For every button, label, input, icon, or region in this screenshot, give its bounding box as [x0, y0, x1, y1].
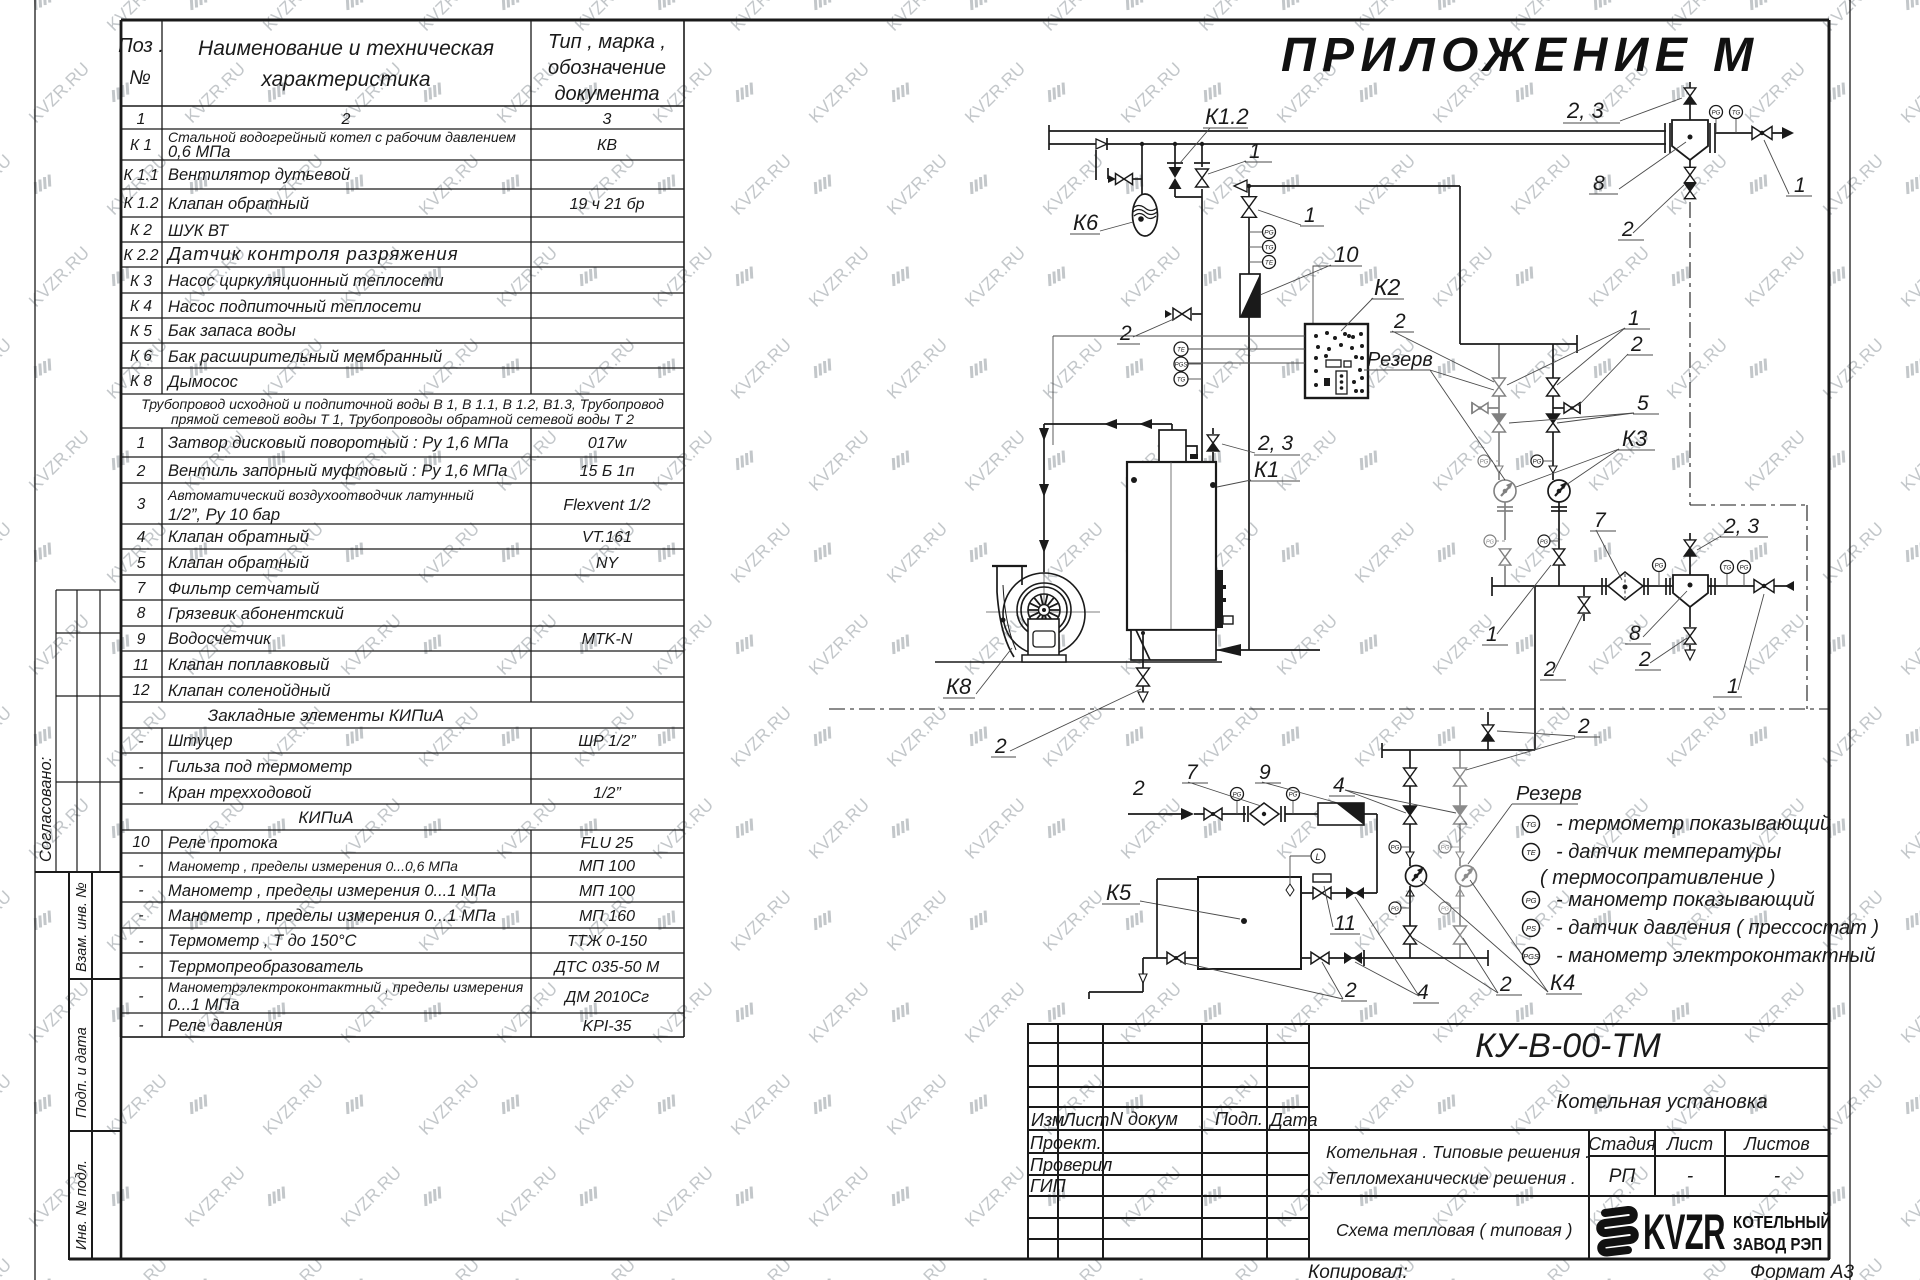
svg-text:Клапан обратный: Клапан обратный — [168, 528, 309, 546]
svg-text:Бак запаса воды: Бак запаса воды — [168, 322, 296, 340]
svg-text:2: 2 — [341, 111, 351, 128]
svg-text:Клапан обратный: Клапан обратный — [168, 195, 309, 213]
svg-text:-: - — [138, 882, 143, 899]
svg-text:К 5: К 5 — [130, 323, 152, 340]
svg-text:2, 3: 2, 3 — [1257, 432, 1293, 455]
svg-text:Flexvent 1/2: Flexvent 1/2 — [563, 497, 650, 514]
svg-text:- термометр показывающий: - термометр показывающий — [1556, 813, 1831, 835]
svg-text:ШУК ВТ: ШУК ВТ — [168, 222, 230, 240]
svg-text:Манометр , пределы измерения: Манометр , пределы измерения 0...0,6 МПа — [168, 858, 458, 874]
svg-text:1: 1 — [137, 111, 146, 128]
svg-text:10: 10 — [1334, 242, 1359, 267]
svg-text:Манометрэлектроконтактный , п: Манометрэлектроконтактный , пределы изме… — [168, 979, 524, 995]
svg-text:NY: NY — [596, 555, 620, 572]
svg-text:0,6 МПа: 0,6 МПа — [168, 143, 230, 161]
svg-text:8: 8 — [1629, 622, 1641, 645]
svg-text:Резерв: Резерв — [1516, 783, 1582, 805]
svg-text:Дымосос: Дымосос — [166, 373, 239, 391]
svg-text:2: 2 — [1638, 648, 1651, 671]
svg-text:ГИП: ГИП — [1030, 1176, 1067, 1196]
svg-text:11: 11 — [133, 657, 149, 674]
svg-text:PG: PG — [1441, 846, 1450, 852]
svg-text:Реле давления: Реле давления — [168, 1017, 283, 1035]
svg-text:2, 3: 2, 3 — [1566, 98, 1604, 123]
svg-text:К8: К8 — [946, 674, 972, 699]
svg-text:2: 2 — [1499, 973, 1512, 996]
svg-text:PS: PS — [1526, 924, 1536, 933]
svg-text:МП 100: МП 100 — [579, 883, 635, 900]
svg-text:KPI-35: KPI-35 — [583, 1018, 632, 1035]
svg-text:7: 7 — [137, 580, 147, 597]
svg-text:-: - — [138, 857, 143, 874]
svg-text:ТТЖ 0-150: ТТЖ 0-150 — [567, 933, 647, 950]
svg-text:-: - — [138, 988, 143, 1005]
svg-text:ПРИЛОЖЕНИЕ М: ПРИЛОЖЕНИЕ М — [1281, 29, 1760, 82]
svg-text:Штуцер: Штуцер — [168, 732, 233, 750]
svg-text:Инв. № подл.: Инв. № подл. — [74, 1160, 90, 1250]
svg-text:PGS: PGS — [1175, 363, 1188, 369]
svg-text:2: 2 — [1577, 715, 1590, 738]
svg-text:PG: PG — [1526, 896, 1537, 905]
svg-text:11: 11 — [1334, 912, 1356, 935]
svg-text:9: 9 — [137, 631, 146, 648]
svg-text:1: 1 — [137, 435, 146, 452]
svg-text:характеристика: характеристика — [260, 68, 430, 91]
svg-text:PG: PG — [1740, 566, 1749, 572]
svg-text:Резерв: Резерв — [1367, 349, 1433, 371]
svg-text:К 4: К 4 — [130, 298, 152, 315]
svg-text:КУ-В-00-ТМ: КУ-В-00-ТМ — [1475, 1027, 1661, 1065]
svg-text:КОТЕЛЬНЫЙ: КОТЕЛЬНЫЙ — [1733, 1212, 1831, 1233]
svg-text:PG: PG — [1486, 540, 1495, 546]
svg-text:7: 7 — [1186, 761, 1199, 784]
svg-text:Закладные элементы КИПиА: Закладные элементы КИПиА — [208, 706, 444, 725]
svg-text:VT.161: VT.161 — [582, 529, 632, 546]
svg-text:-: - — [138, 733, 143, 750]
svg-text:Копировал:: Копировал: — [1308, 1262, 1408, 1280]
svg-text:обозначение: обозначение — [548, 57, 666, 79]
svg-text:2: 2 — [994, 735, 1007, 758]
svg-text:3: 3 — [137, 496, 146, 513]
svg-text:К 3: К 3 — [130, 273, 152, 290]
svg-text:МП 160: МП 160 — [579, 908, 635, 925]
svg-text:Листов: Листов — [1743, 1134, 1810, 1154]
svg-text:Поз .: Поз . — [118, 35, 164, 57]
svg-text:Кран трехходовой: Кран трехходовой — [168, 784, 311, 802]
svg-text:Проверил: Проверил — [1030, 1155, 1112, 1175]
svg-text:К2: К2 — [1374, 274, 1401, 300]
svg-text:TE: TE — [1265, 260, 1274, 267]
svg-text:К1: К1 — [1254, 457, 1279, 482]
svg-text:PG: PG — [1391, 907, 1400, 913]
svg-text:1: 1 — [1304, 204, 1316, 227]
svg-text:Подп. и дата: Подп. и дата — [74, 1027, 90, 1118]
svg-text:2: 2 — [136, 463, 146, 480]
svg-text:документа: документа — [554, 83, 659, 105]
svg-text:Формат А3: Формат А3 — [1750, 1262, 1854, 1280]
svg-text:КВ: КВ — [597, 137, 617, 154]
svg-text:2: 2 — [1132, 777, 1145, 800]
svg-text:РП: РП — [1609, 1166, 1636, 1187]
svg-text:1: 1 — [1486, 623, 1498, 646]
svg-text:( термосопративление ): ( термосопративление ) — [1540, 867, 1776, 889]
svg-text:Клапан соленойдный: Клапан соленойдный — [168, 682, 330, 700]
svg-text:К 2: К 2 — [130, 222, 152, 239]
svg-text:Датчик контроля разряжения: Датчик контроля разряжения — [166, 243, 459, 264]
svg-text:прямой сетевой воды Т 1, Труб: прямой сетевой воды Т 1, Трубопроводы об… — [171, 411, 634, 427]
svg-text:Проект.: Проект. — [1030, 1133, 1102, 1153]
svg-text:Трубопровод исходной и подпито: Трубопровод исходной и подпиточной воды … — [141, 396, 664, 412]
svg-text:Манометр , пределы измерения: Манометр , пределы измерения 0...1 МПа — [168, 907, 496, 925]
svg-text:-: - — [138, 907, 143, 924]
svg-text:К6: К6 — [1073, 210, 1099, 235]
svg-text:TG: TG — [1723, 566, 1732, 572]
svg-text:N докум: N докум — [1110, 1109, 1178, 1129]
svg-text:PG: PG — [1391, 846, 1400, 852]
svg-text:К 2.2: К 2.2 — [124, 247, 159, 264]
svg-text:PGS: PGS — [1523, 952, 1539, 961]
svg-text:7: 7 — [1594, 509, 1607, 532]
svg-text:2: 2 — [1543, 658, 1556, 681]
svg-text:9: 9 — [1259, 761, 1271, 784]
svg-text:Вентилятор дутьевой: Вентилятор дутьевой — [168, 166, 350, 184]
svg-text:5: 5 — [1637, 392, 1649, 415]
svg-text:PG: PG — [1264, 230, 1273, 237]
svg-text:1: 1 — [1628, 307, 1640, 330]
svg-text:-: - — [1687, 1166, 1693, 1187]
svg-text:Дата: Дата — [1268, 1110, 1318, 1130]
svg-text:№: № — [129, 67, 151, 89]
svg-text:- датчик температуры: - датчик температуры — [1556, 841, 1782, 863]
svg-text:PG: PG — [1480, 460, 1489, 466]
svg-text:Стадия: Стадия — [1588, 1134, 1656, 1154]
svg-text:Термометр , Т до 150°С: Термометр , Т до 150°С — [168, 932, 357, 950]
svg-text:2: 2 — [1344, 979, 1357, 1002]
svg-text:Лист: Лист — [1062, 1110, 1109, 1130]
svg-text:8: 8 — [137, 605, 146, 622]
svg-text:1/2”, Ру 10 бар: 1/2”, Ру 10 бар — [168, 506, 280, 524]
svg-text:PG: PG — [1533, 460, 1542, 466]
svg-text:TG: TG — [1732, 111, 1741, 117]
svg-text:К1.2: К1.2 — [1205, 104, 1249, 129]
svg-text:8: 8 — [1593, 172, 1605, 195]
svg-text:10: 10 — [132, 834, 150, 851]
svg-text:-: - — [138, 784, 143, 801]
svg-text:Фильтр сетчатый: Фильтр сетчатый — [168, 580, 319, 598]
svg-text:ДТС 035-50 М: ДТС 035-50 М — [553, 959, 660, 976]
svg-text:К 1.1: К 1.1 — [124, 167, 159, 184]
svg-text:1: 1 — [1727, 675, 1739, 698]
svg-text:TE: TE — [1526, 848, 1537, 857]
svg-text:- датчик давления ( прессост: - датчик давления ( прессостат ) — [1556, 917, 1879, 939]
svg-text:TG: TG — [1177, 378, 1186, 384]
svg-text:PG: PG — [1655, 564, 1664, 570]
svg-text:4: 4 — [1333, 774, 1345, 797]
svg-text:4: 4 — [1417, 981, 1429, 1004]
svg-text:2: 2 — [1119, 322, 1132, 345]
svg-text:К 1: К 1 — [130, 137, 152, 154]
svg-text:-: - — [138, 759, 143, 776]
svg-text:5: 5 — [137, 555, 146, 572]
svg-text:Автоматический воздухоотводчи: Автоматический воздухоотводчик латунный — [167, 487, 474, 503]
svg-text:FLU 25: FLU 25 — [581, 835, 634, 852]
svg-text:2: 2 — [1393, 310, 1406, 333]
svg-text:Бак расширительный мембранный: Бак расширительный мембранный — [168, 348, 442, 366]
svg-text:ШР 1/2”: ШР 1/2” — [578, 733, 636, 750]
svg-text:19 ч 21 бр: 19 ч 21 бр — [569, 196, 644, 213]
svg-text:КИПиА: КИПиА — [298, 808, 353, 827]
svg-text:Манометр , пределы измерения: Манометр , пределы измерения 0...1 МПа — [168, 882, 496, 900]
svg-text:- манометр электроконтактный: - манометр электроконтактный — [1556, 945, 1875, 967]
svg-text:Клапан обратный: Клапан обратный — [168, 554, 309, 572]
svg-text:PG: PG — [1441, 907, 1450, 913]
svg-text:Схема тепловая ( типовая ): Схема тепловая ( типовая ) — [1336, 1220, 1572, 1240]
svg-text:2, 3: 2, 3 — [1723, 515, 1759, 538]
svg-text:Подп.: Подп. — [1215, 1109, 1263, 1129]
svg-text:Вентиль запорный муфтовый : Р: Вентиль запорный муфтовый : Ру 1,6 МПа — [168, 462, 507, 480]
svg-text:PG: PG — [1712, 111, 1721, 117]
svg-text:Насос циркуляционный теплосети: Насос циркуляционный теплосети — [168, 272, 444, 290]
svg-text:ДМ 2010Сг: ДМ 2010Сг — [563, 989, 649, 1006]
svg-text:Грязевик абонентский: Грязевик абонентский — [168, 605, 344, 623]
svg-text:L: L — [1315, 852, 1320, 862]
svg-text:TG: TG — [1526, 820, 1537, 829]
svg-text:К4: К4 — [1550, 970, 1575, 995]
svg-text:4: 4 — [137, 529, 146, 546]
svg-text:PG: PG — [1289, 793, 1298, 799]
svg-text:К3: К3 — [1622, 426, 1648, 451]
svg-text:Наименование и техническая: Наименование и техническая — [198, 37, 494, 60]
svg-text:-: - — [138, 958, 143, 975]
svg-text:2: 2 — [1621, 218, 1634, 241]
svg-text:017w: 017w — [588, 435, 628, 452]
svg-text:Изм: Изм — [1031, 1110, 1064, 1130]
svg-text:К 1.2: К 1.2 — [124, 195, 159, 212]
svg-text:Согласовано:: Согласовано: — [37, 757, 55, 862]
svg-text:К 6: К 6 — [130, 348, 152, 365]
svg-text:МП 100: МП 100 — [579, 858, 635, 875]
svg-text:15 Б 1п: 15 Б 1п — [580, 463, 635, 480]
svg-text:1/2”: 1/2” — [593, 785, 621, 802]
svg-text:-: - — [138, 933, 143, 950]
svg-text:Котельная установка: Котельная установка — [1557, 1091, 1768, 1113]
svg-text:- манометр показывающий: - манометр показывающий — [1556, 889, 1815, 911]
svg-text:-: - — [1774, 1166, 1780, 1187]
svg-text:К 8: К 8 — [130, 373, 152, 390]
svg-text:PG: PG — [1540, 540, 1549, 546]
svg-text:К5: К5 — [1106, 880, 1132, 905]
svg-text:1: 1 — [1794, 174, 1806, 197]
svg-text:Гильза под термометр: Гильза под термометр — [168, 758, 352, 776]
svg-text:Террмопреобразователь: Террмопреобразователь — [168, 958, 364, 976]
svg-text:Реле протока: Реле протока — [168, 834, 278, 852]
svg-text:Лист: Лист — [1666, 1134, 1713, 1154]
svg-text:0...1 МПа: 0...1 МПа — [168, 996, 240, 1014]
svg-text:2: 2 — [1630, 333, 1643, 356]
svg-text:Насос подпиточный теплосети: Насос подпиточный теплосети — [168, 298, 421, 316]
svg-text:TE: TE — [1177, 348, 1186, 354]
svg-text:12: 12 — [132, 682, 150, 699]
svg-text:Котельная . Типовые решения .: Котельная . Типовые решения . — [1326, 1142, 1590, 1162]
svg-text:1: 1 — [1249, 140, 1261, 163]
svg-text:-: - — [138, 1017, 143, 1034]
svg-text:Затвор дисковый поворотный :: Затвор дисковый поворотный : Ру 1,6 МПа — [168, 434, 508, 452]
svg-text:ЗАВОД РЭП: ЗАВОД РЭП — [1733, 1234, 1822, 1255]
svg-text:Тип , марка ,: Тип , марка , — [548, 31, 666, 53]
svg-text:TG: TG — [1264, 245, 1273, 252]
svg-text:Водосчетчик: Водосчетчик — [168, 630, 272, 648]
svg-text:3: 3 — [603, 111, 612, 128]
svg-text:KVZR: KVZR — [1643, 1203, 1725, 1259]
svg-text:Клапан поплавковый: Клапан поплавковый — [168, 656, 329, 674]
svg-text:Взам. инв. №: Взам. инв. № — [74, 882, 90, 972]
svg-text:Тепломеханические решения .: Тепломеханические решения . — [1326, 1168, 1576, 1188]
svg-text:MTK-N: MTK-N — [582, 631, 633, 648]
